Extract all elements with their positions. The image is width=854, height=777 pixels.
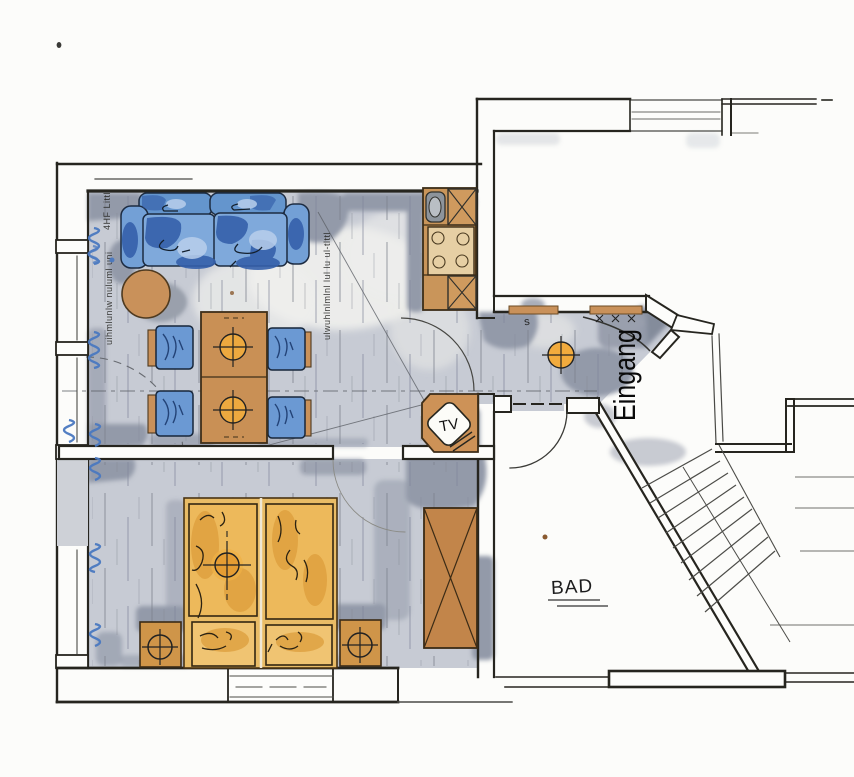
svg-text:uihmlunlw nuluml uni: uihmlunlw nuluml uni — [104, 251, 114, 345]
svg-text:ulwuhlnlmlnl lul lu ul-tlttl: ulwuhlnlmlnl lul lu ul-tlttl — [322, 232, 332, 340]
svg-text:Eingang: Eingang — [607, 329, 642, 421]
svg-text:BAD: BAD — [551, 576, 594, 599]
svg-text:4HF Littl: 4HF Littl — [102, 192, 112, 230]
svg-text:TV: TV — [438, 415, 460, 435]
